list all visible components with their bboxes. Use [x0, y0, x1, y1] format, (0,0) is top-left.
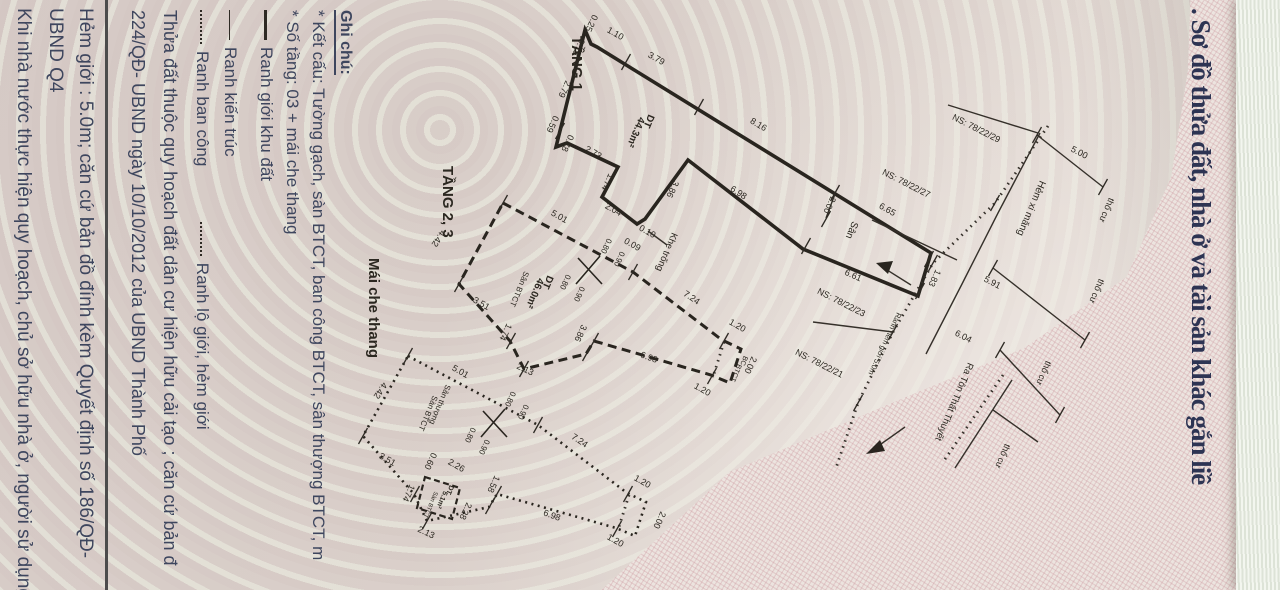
legend-label: Ranh kiến trúc [221, 47, 240, 157]
legend-heading-text: Ghi chú: [334, 10, 354, 75]
legend-item-kien-truc: Ranh kiến trúc [220, 10, 240, 157]
binding-fabric-edge [1236, 0, 1280, 590]
legend-symbol-dotted [200, 10, 202, 44]
legend-item-khu-dat: Ranh giới khu đất [256, 10, 276, 181]
note-quy-hoach: Thửa đất thuộc quy hoạch đất dân cư hiện… [159, 10, 180, 566]
scanned-cadastral-page: TẦNG 10.251.103.798.166.650.792.790.590.… [0, 0, 1280, 590]
legend-label: Ranh ban công [193, 51, 212, 166]
legend-label: Ranh giới khu đất [257, 47, 276, 181]
legend-structure-line: * Kết cấu: Tường gạch, sàn BTCT, ban côn… [308, 10, 328, 560]
legend-label: Ranh lộ giới, hẻm giới [193, 263, 212, 430]
note-ubnd: UBND Q4 [44, 8, 66, 92]
legend-symbol-solid-thin [229, 10, 230, 40]
legend-symbol-dotted [200, 222, 202, 256]
rotated-document-text: . Sơ đồ thửa đất, nhà ở và tài sản khác … [0, 0, 1280, 590]
note-khi-nha-nuoc: Khi nhà nước thực hiện quy hoạch, chủ sở… [12, 8, 34, 590]
legend-heading: Ghi chú: [336, 10, 354, 75]
legend-floors-line: * Số tầng: 03 + mái che thang [282, 10, 302, 234]
horizontal-rule [106, 0, 109, 590]
page-title: . Sơ đồ thửa đất, nhà ở và tài sản khác … [1185, 8, 1216, 484]
legend-item-ban-cong: Ranh ban công Ranh lộ giới, hẻm giới [192, 10, 212, 430]
note-quyet-dinh: 224/QĐ- UBND ngày 10/10/2012 của UBND Th… [127, 10, 148, 456]
legend-symbol-solid-thick [264, 10, 267, 40]
note-hem-gioi: Hẻm giới : 5.0m; căn cứ bản đồ đính kèm … [74, 8, 96, 558]
